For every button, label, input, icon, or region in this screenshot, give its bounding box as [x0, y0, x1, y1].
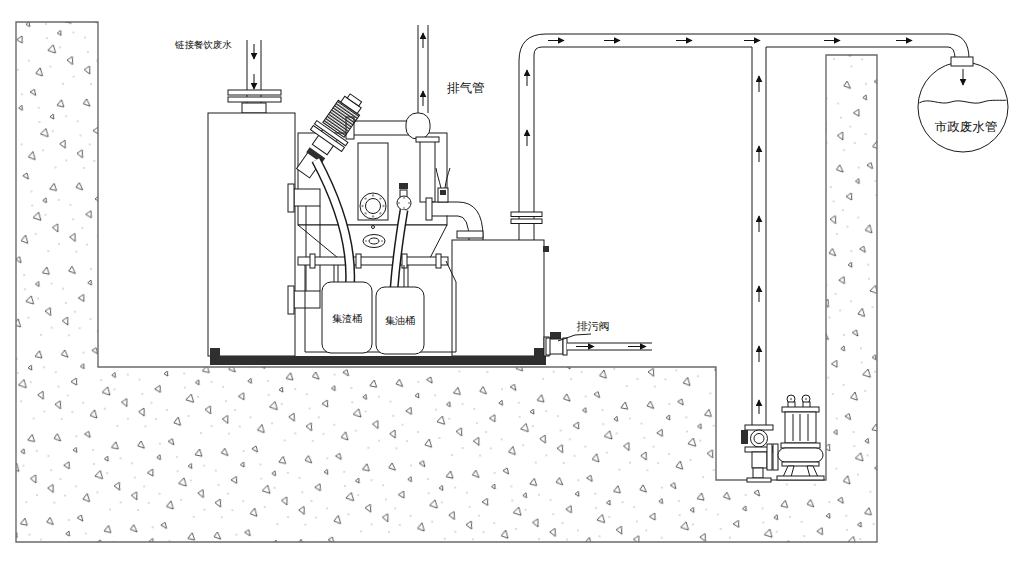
discharge-pipe	[511, 34, 969, 240]
slag-bucket: 集渣桶	[322, 282, 372, 353]
drain-valve-assembly: 排污阀	[544, 320, 652, 356]
vent-pipe-label: 排气管	[447, 81, 485, 95]
grease-separator-unit: 集渣桶 集油桶	[208, 87, 549, 365]
pump-riser-pipe	[752, 47, 766, 426]
base-plate	[210, 356, 546, 365]
inlet-label: 链接餐饮废水	[174, 39, 232, 50]
pump-base	[777, 476, 824, 480]
municipal-sewer-label: 市政废水管	[935, 120, 998, 134]
diagram-canvas: 市政废水管 链接餐饮废水	[0, 0, 1017, 562]
pump-volute	[778, 448, 823, 462]
vent-pipe: 排气管	[418, 25, 485, 113]
oil-bucket-label: 集油桶	[385, 315, 415, 326]
installation-diagram: 市政废水管 链接餐饮废水	[0, 0, 1017, 562]
pipe-inlet-collar	[951, 57, 973, 66]
vent-header-pipe	[352, 121, 410, 135]
secondary-tank	[452, 240, 544, 356]
submersible-pump	[777, 395, 824, 480]
oil-bucket: 集油桶	[376, 287, 424, 354]
inlet-tank	[208, 113, 295, 356]
brand-emblem	[363, 235, 385, 248]
inlet-pipe: 链接餐饮废水	[174, 39, 281, 113]
municipal-sewer-manhole: 市政废水管	[918, 57, 1008, 152]
slag-bucket-label: 集渣桶	[332, 313, 362, 324]
concrete-structure	[16, 22, 877, 542]
drain-valve-label: 排污阀	[577, 320, 610, 332]
porthole-flange	[360, 193, 386, 219]
vent-cap	[406, 113, 430, 139]
support-rail	[298, 257, 448, 265]
